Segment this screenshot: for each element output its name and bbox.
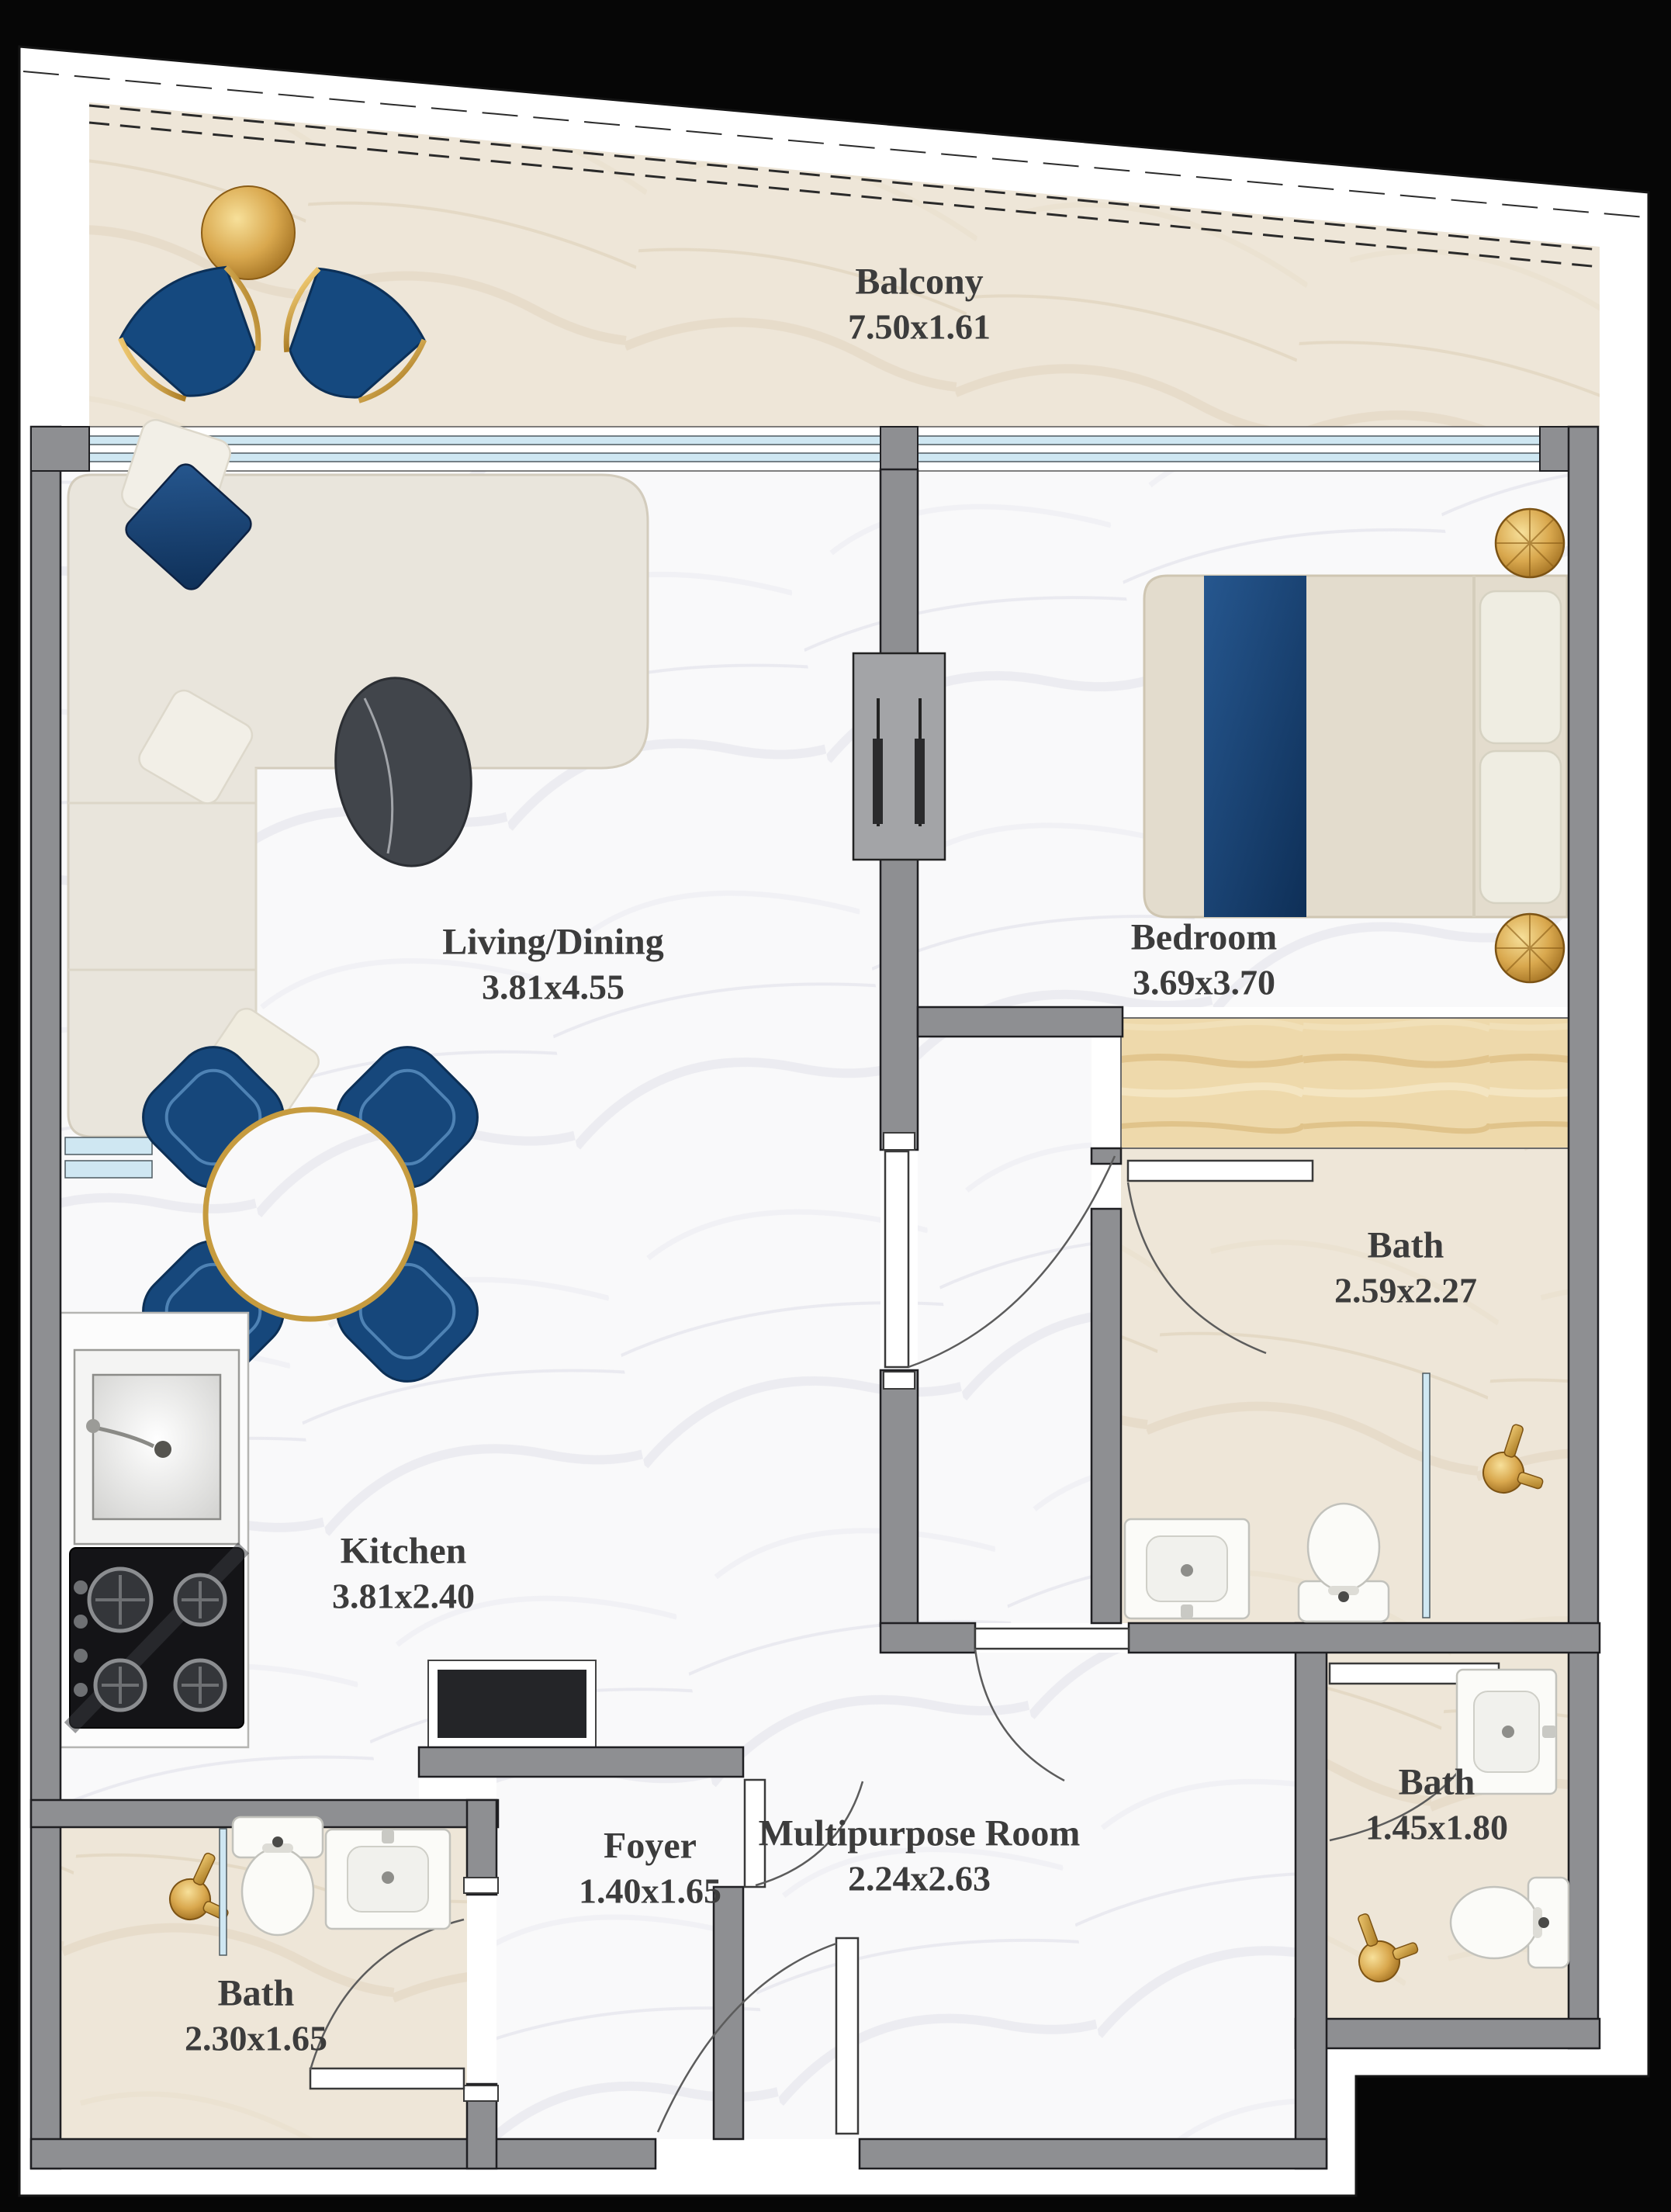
kitchen-dims: 3.81x2.40 [332,1574,475,1618]
bath-ensuite-dims: 2.59x2.27 [1334,1269,1477,1312]
window-band [61,427,1569,471]
stove-icon [70,1548,244,1728]
room-label-bath-lower: Bath 2.30x1.65 [185,1971,327,2061]
sliding-glass-icon [89,453,1555,462]
room-label-kitchen: Kitchen 3.81x2.40 [332,1529,475,1618]
bath-guest-name: Bath [1365,1760,1508,1806]
wall-hall-right [1092,1209,1121,1623]
sink-icon [326,1829,450,1929]
nightstand-icon [1496,509,1564,577]
multipurpose-top-door [975,1629,1129,1649]
wall-window-cap-left [31,427,89,471]
bedroom-dims: 3.69x3.70 [1131,961,1277,1004]
wall-right [1569,427,1598,2048]
bath-lower-dims: 2.30x1.65 [185,2016,327,2060]
living-dining-name: Living/Dining [442,920,663,966]
wall-hall-right-jamb [1092,1148,1121,1164]
kitchen-counter [61,1313,248,1747]
bed-icon [1144,509,1567,982]
floor-plan: Balcony 7.50x1.61 Living/Dining 3.81x4.5… [0,0,1671,2212]
appliance-icon [428,1660,596,1747]
entrance-door [836,1938,858,2134]
door-jamb [884,1372,915,1389]
room-label-bath-ensuite: Bath 2.59x2.27 [1334,1224,1477,1313]
bath-ensuite-door [1128,1161,1313,1181]
nightstand-icon [1496,914,1564,982]
room-label-bedroom: Bedroom 3.69x3.70 [1131,916,1277,1005]
room-label-living-dining: Living/Dining 3.81x4.55 [442,920,663,1009]
wall-kitchen-bottom [419,1747,743,1777]
door-jamb [464,1878,498,1893]
living-dining-dims: 3.81x4.55 [442,965,663,1009]
balcony-name: Balcony [848,260,991,306]
wall-bath-guest-bottom [1296,2019,1600,2048]
kitchen-name: Kitchen [332,1529,475,1575]
wall-bedroom-bottom [918,1007,1123,1037]
room-label-bath-guest: Bath 1.45x1.80 [1365,1760,1508,1850]
balcony-table-icon [202,186,295,279]
wall-window-cap-mid [880,427,918,471]
wall-mid-horizontal-a [880,1623,975,1653]
door-jamb [884,1133,915,1150]
pocket-door-icon [853,653,945,860]
bed-runner [1204,576,1306,917]
hall-floor [918,1037,1092,1623]
shower-glass-icon [1423,1373,1430,1618]
sink-icon [1125,1519,1249,1618]
wall-left [31,427,61,2169]
bed-pillow-icon [1480,751,1561,903]
room-label-balcony: Balcony 7.50x1.61 [848,260,991,349]
bed-pillow-icon [1480,591,1561,743]
shower-glass-icon [220,1829,227,1955]
foyer-dims: 1.40x1.65 [579,1869,721,1913]
kitchen-floor-pocket [61,1747,419,1800]
wardrobe-icon [1121,1018,1569,1148]
balcony-dims: 7.50x1.61 [848,305,991,348]
room-label-foyer: Foyer 1.40x1.65 [579,1824,721,1913]
wall-foyer-divider [714,1887,743,2139]
foyer-name: Foyer [579,1824,721,1870]
wall-living-divider-b [880,1370,918,1626]
bath-guest-dims: 1.45x1.80 [1365,1805,1508,1849]
multipurpose-name: Multipurpose Room [759,1812,1081,1857]
bath-lower-name: Bath [185,1971,327,2017]
bath-ensuite-name: Bath [1334,1224,1477,1269]
wall-bottom-right [860,2139,1327,2169]
wall-multipurpose-right [1296,1623,1327,2169]
bedroom-name: Bedroom [1131,916,1277,961]
multipurpose-dims: 2.24x2.63 [759,1857,1081,1900]
dining-table-icon [206,1109,415,1319]
sliding-glass-icon [89,436,1555,445]
bath-lower-door [310,2068,464,2089]
wall-bottom-left [31,2139,656,2169]
wall-mid-horizontal-b [1129,1623,1600,1653]
hall-door [885,1151,908,1367]
door-jamb [464,2086,498,2101]
room-label-multipurpose: Multipurpose Room 2.24x2.63 [759,1812,1081,1901]
